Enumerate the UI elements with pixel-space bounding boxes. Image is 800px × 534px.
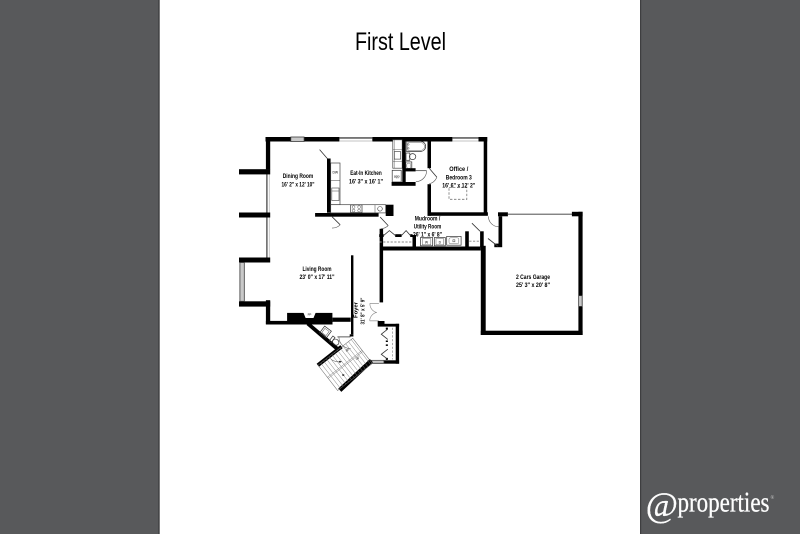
- svg-text:16' 3" x 16' 1": 16' 3" x 16' 1": [349, 179, 383, 186]
- svg-text:app: app: [394, 175, 400, 179]
- svg-text:Dining Room: Dining Room: [283, 173, 314, 180]
- svg-text:Office /: Office /: [449, 166, 468, 173]
- svg-text:25' 3" x 20' 8": 25' 3" x 20' 8": [516, 282, 550, 289]
- svg-text:Utility Room: Utility Room: [414, 224, 442, 231]
- svg-text:16' 6" x 12' 2": 16' 6" x 12' 2": [442, 183, 475, 190]
- svg-text:®: ®: [771, 495, 775, 501]
- svg-text:23' 0" x 17' 11": 23' 0" x 17' 11": [300, 274, 335, 281]
- svg-text:First Level: First Level: [355, 28, 446, 56]
- svg-text:26' 1" x 6' 8": 26' 1" x 6' 8": [413, 231, 442, 238]
- svg-text:16' 2" x 12' 10": 16' 2" x 12' 10": [282, 181, 315, 188]
- svg-text:properties: properties: [678, 487, 770, 519]
- svg-text:2 Cars Garage: 2 Cars Garage: [516, 274, 550, 281]
- svg-text:Bedroom 3: Bedroom 3: [446, 175, 472, 182]
- svg-text:Mudroom /: Mudroom /: [415, 216, 441, 223]
- svg-text:DW: DW: [332, 171, 338, 175]
- svg-text:FP: FP: [308, 313, 312, 317]
- svg-text:Foyer: Foyer: [354, 301, 360, 318]
- svg-text:Living Room: Living Room: [303, 266, 332, 273]
- svg-text:up: up: [355, 355, 361, 361]
- svg-text:31' 8" x 5' 9": 31' 8" x 5' 9": [361, 297, 367, 324]
- svg-text:dn: dn: [345, 347, 351, 353]
- svg-text:Eat-In Kitchen: Eat-In Kitchen: [350, 170, 382, 177]
- svg-text:@: @: [646, 486, 678, 525]
